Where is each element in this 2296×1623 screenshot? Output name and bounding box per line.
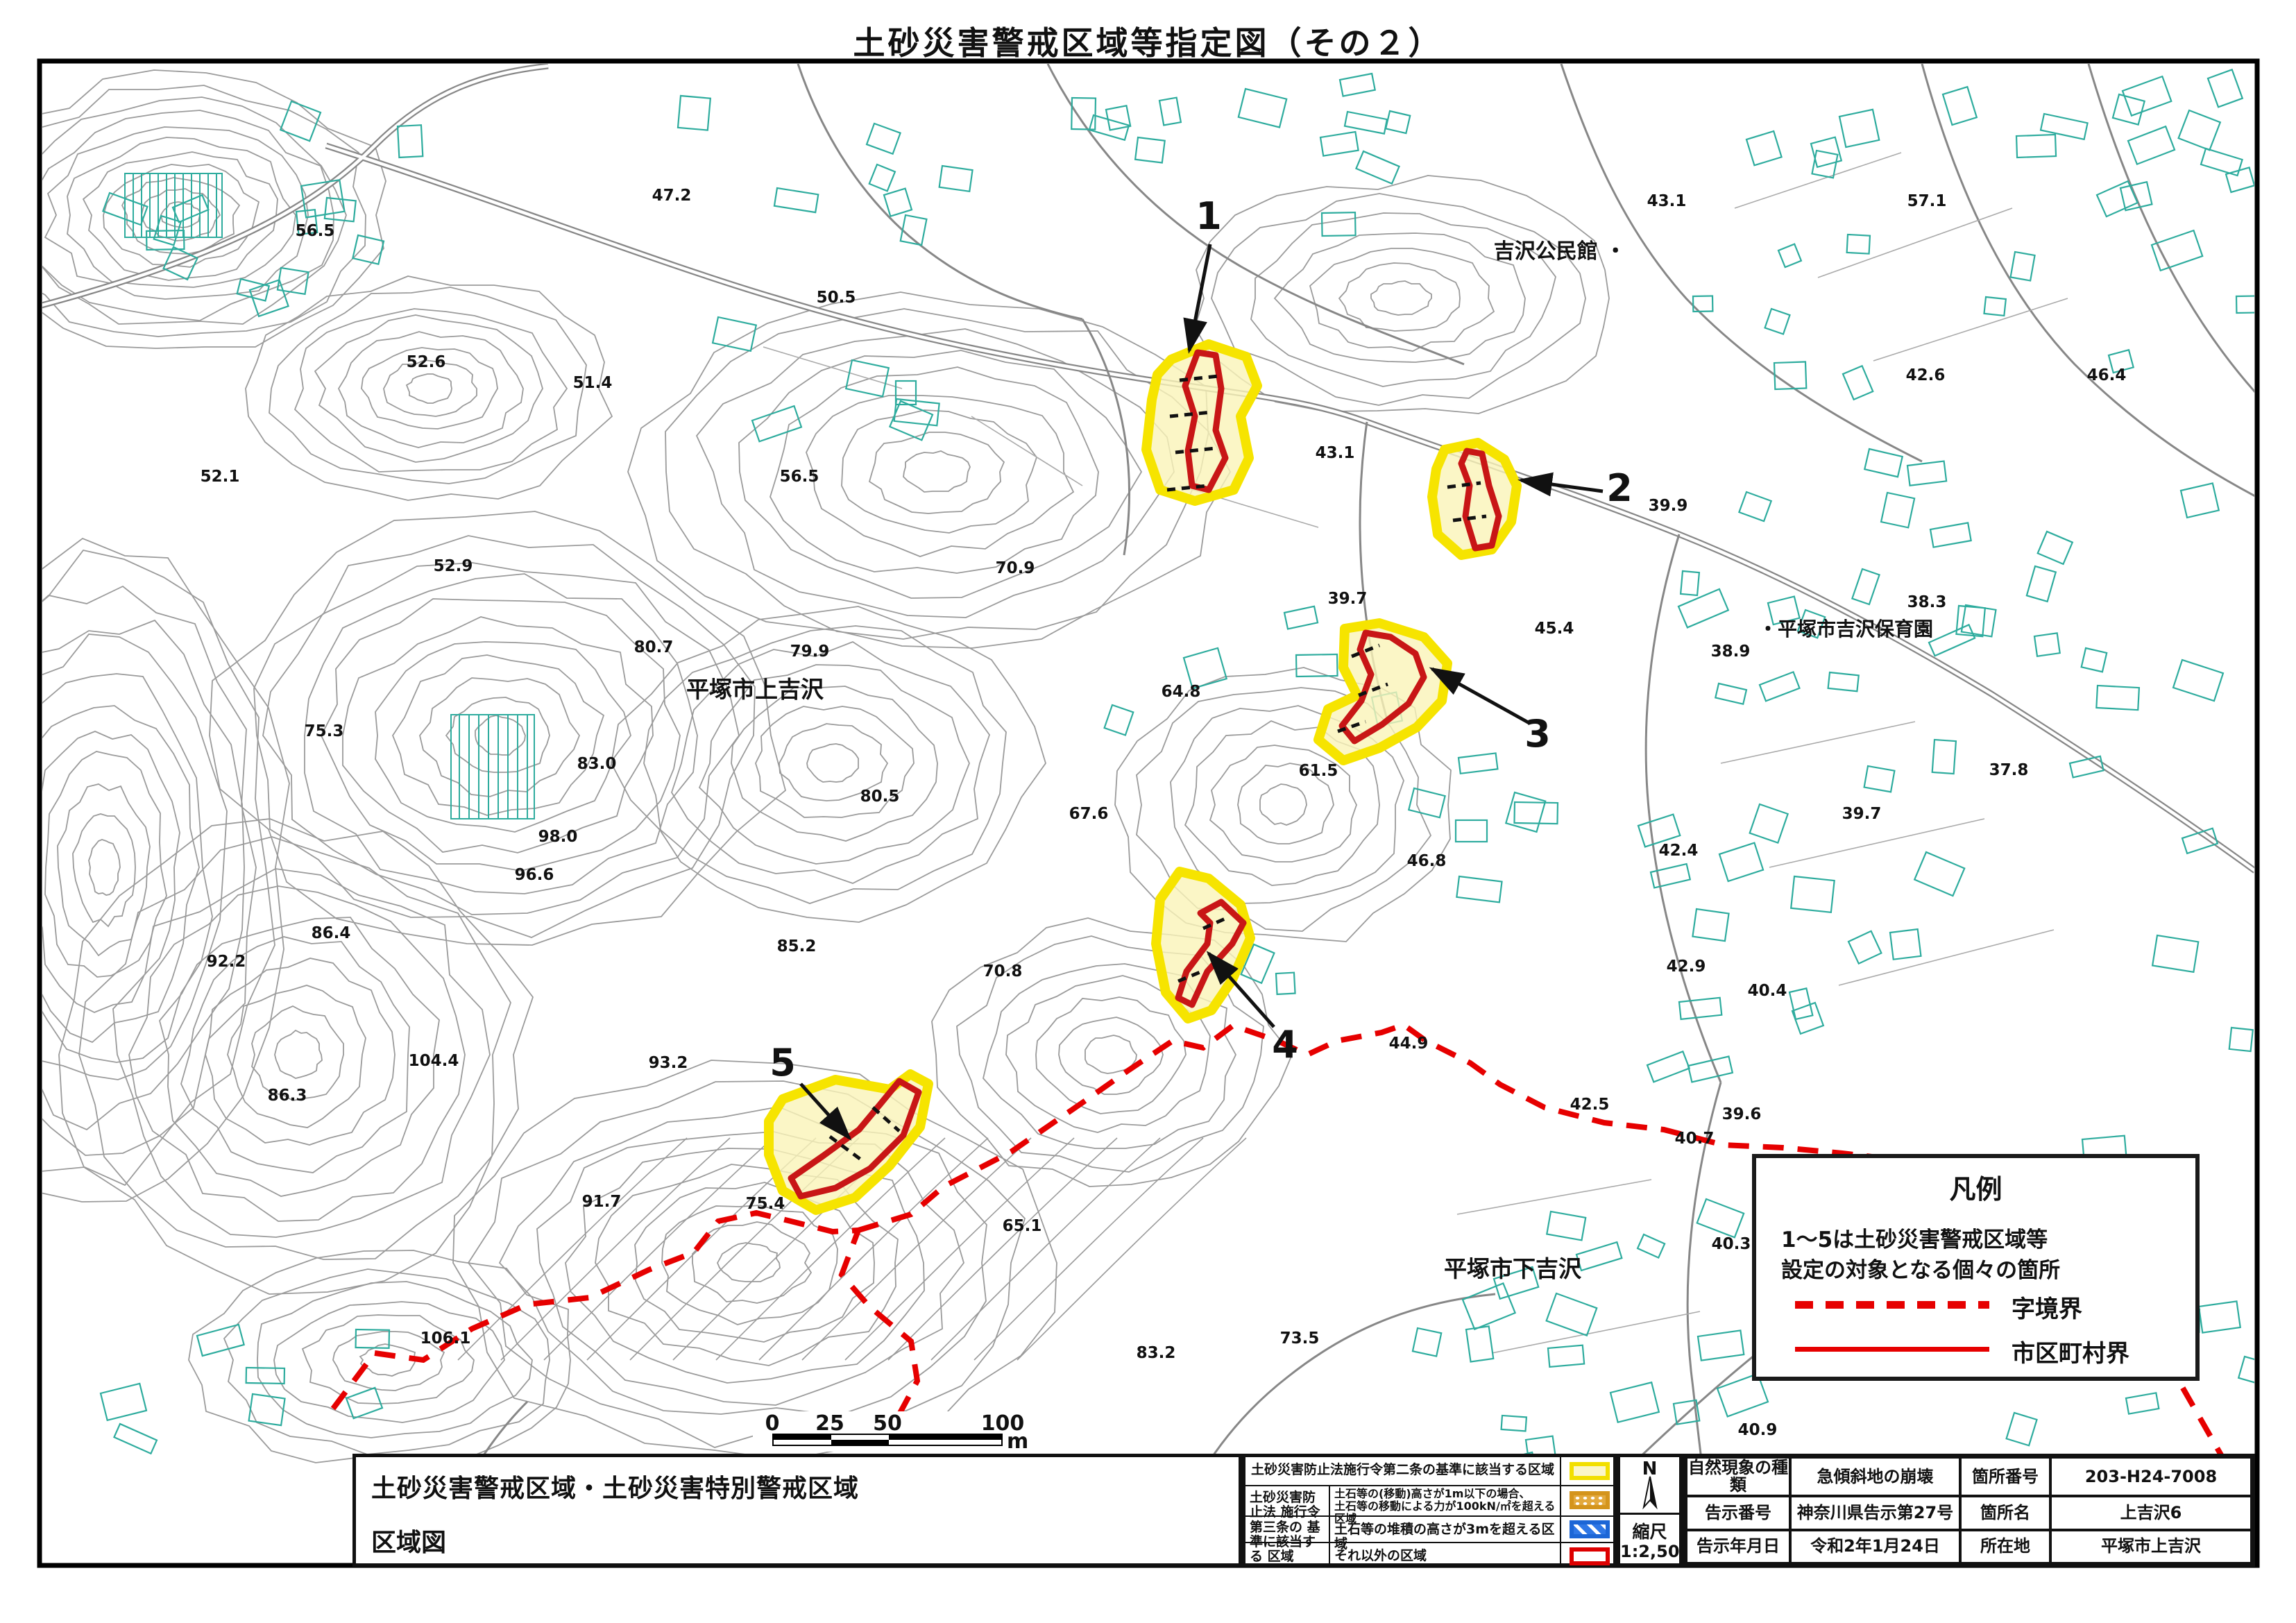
spot-height-label: 86.4 [312,924,351,942]
spot-height-label: 52.9 [434,557,473,575]
blue-hatch-swatch [1570,1520,1610,1538]
compass-scale-box: N 縮尺 1:2,500 [1617,1454,1683,1567]
spot-height-label: 83.2 [1137,1344,1176,1362]
spot-height-label: 57.1 [1907,192,1947,210]
spot-height-label: 39.7 [1328,590,1368,608]
spot-height-label: 43.1 [1316,444,1355,462]
zone-number-label: 5 [769,1041,796,1085]
spot-height-label: 70.9 [996,559,1035,577]
category-row4-label: それ以外の区域 [1334,1549,1556,1563]
zone-number-label: 4 [1272,1023,1298,1067]
place-name-label: ・平塚市吉沢保育園 [1758,618,1933,640]
place-name-label: 吉沢公民館 ・ [1494,239,1626,264]
info-label: 告示年月日 [1686,1530,1790,1563]
spot-height-label: 42.6 [1906,366,1946,384]
spot-height-label: 96.6 [515,866,554,884]
spot-height-label: 92.2 [207,953,246,971]
info-label: 箇所名 [1960,1496,2050,1529]
spot-height-label: 65.1 [1003,1217,1042,1235]
zone-number-label: 2 [1606,466,1633,510]
info-value: 203-H24-7008 [2050,1457,2252,1496]
spot-height-label: 47.2 [652,187,692,205]
hazard-map-page: { "page_title": "土砂災害警戒区域等指定図（その２）", "ma… [0,0,2296,1623]
spot-height-label: 39.9 [1649,497,1688,515]
scale-unit: m [1007,1429,1028,1454]
sheet-title-line1: 土砂災害警戒区域・土砂災害特別警戒区域 [371,1468,859,1504]
spot-height-label: 86.3 [268,1087,307,1105]
spot-height-label: 80.7 [634,638,674,656]
spot-height-label: 43.1 [1647,192,1687,210]
zone-number-label: 3 [1524,712,1551,756]
info-label: 箇所番号 [1960,1457,2050,1496]
scale-tick-50: 50 [873,1411,902,1436]
spot-height-label: 42.9 [1667,958,1706,976]
category-row1-label: 土砂災害防止法施行令第二条の基準に該当する区域 [1251,1463,1556,1477]
spot-height-label: 56.5 [780,468,819,486]
info-value: 上吉沢6 [2050,1496,2252,1529]
spot-height-label: 45.4 [1535,620,1574,638]
spot-height-label: 93.2 [649,1054,688,1072]
info-label: 所在地 [1960,1530,2050,1563]
spot-height-label: 52.1 [201,468,240,486]
info-value: 平塚市上吉沢 [2050,1530,2252,1563]
scale-label: 縮尺 [1620,1518,1679,1543]
area-category-table: 土砂災害防止法施行令第二条の基準に該当する区域 土砂災害防止法 施行令第三条の … [1242,1454,1617,1567]
solid-line-sample [1795,1347,1989,1352]
spot-height-label: 80.5 [860,788,900,806]
legend-note-line1: 1～5は土砂災害警戒区域等 [1781,1222,2048,1253]
sheet-title-box: 土砂災害警戒区域・土砂災害特別警戒区域 区域図 [352,1454,1242,1567]
scale-bar-graphic [772,1434,1003,1446]
category-group-label: 土砂災害防止法 施行令第三条の 基準に該当する 区域 [1250,1490,1327,1564]
spot-height-label: 40.7 [1675,1130,1715,1148]
map-legend-box: 凡例 1～5は土砂災害警戒区域等 設定の対象となる個々の箇所 字境界 市区町村界 [1752,1154,2200,1381]
spot-height-label: 70.8 [983,962,1023,980]
spot-height-label: 38.3 [1907,593,1947,611]
spot-height-label: 50.5 [817,289,856,307]
spot-height-label: 91.7 [582,1193,622,1211]
scale-value: 1:2,500 [1620,1542,1679,1561]
spot-height-label: 104.4 [409,1052,459,1070]
spot-height-label: 40.9 [1738,1421,1778,1439]
dashed-line-sample [1795,1301,1989,1309]
spot-height-label: 79.9 [790,643,830,661]
spot-height-label: 37.8 [1989,761,2029,779]
sheet-title-line2: 区域図 [371,1522,446,1558]
spot-height-label: 85.2 [777,937,817,955]
spot-height-label: 98.0 [538,828,578,846]
spot-height-label: 39.7 [1842,805,1882,823]
orange-hatch-swatch [1570,1491,1610,1509]
red-outline-swatch [1570,1547,1610,1565]
spot-height-label: 52.6 [407,353,446,371]
spot-height-label: 46.8 [1407,852,1447,870]
spot-height-label: 46.4 [2087,366,2127,384]
spot-height-label: 67.6 [1069,805,1109,823]
legend-note-line2: 設定の対象となる個々の箇所 [1781,1252,2060,1284]
scale-bar: 0 25 50 100 m [753,1411,1044,1452]
spot-height-label: 61.5 [1299,762,1338,780]
zone-number-label: 1 [1196,194,1222,238]
scale-tick-0: 0 [765,1411,780,1436]
spot-height-label: 56.5 [296,222,335,240]
info-value: 神奈川県告示第27号 [1790,1496,1960,1529]
solid-line-label: 市区町村界 [2012,1334,2129,1368]
spot-height-label: 38.9 [1711,643,1751,661]
info-value: 令和2年1月24日 [1790,1530,1960,1563]
spot-height-label: 39.6 [1722,1105,1762,1123]
spot-height-label: 40.4 [1748,982,1787,1000]
spot-height-label: 73.5 [1280,1329,1320,1348]
info-value: 急傾斜地の崩壊 [1790,1457,1960,1496]
info-label: 自然現象の種類 [1686,1457,1790,1496]
north-arrow-icon [1641,1475,1659,1510]
yellow-zone-swatch [1570,1462,1610,1480]
info-label: 告示番号 [1686,1496,1790,1529]
legend-title: 凡例 [1756,1168,2195,1206]
spot-height-label: 106.1 [420,1329,471,1348]
place-name-label: 平塚市上吉沢 [686,676,824,703]
category-row2-label: 土石等の(移動)高さが1m以下の場合、 土石等の移動による力が100kN/㎡を超… [1334,1488,1556,1525]
spot-height-label: 42.4 [1659,842,1699,860]
designation-info-table: 自然現象の種類 急傾斜地の崩壊 箇所番号 203-H24-7008 告示番号 神… [1683,1454,2255,1567]
place-name-label: 平塚市下吉沢 [1444,1255,1582,1282]
dashed-line-label: 字境界 [2012,1290,2082,1324]
spot-height-label: 64.8 [1162,683,1201,701]
spot-height-label: 44.9 [1389,1035,1429,1053]
spot-height-label: 75.4 [746,1195,785,1213]
spot-height-label: 83.0 [577,755,617,773]
hazard-zone-1-yellow [1146,344,1257,501]
spot-height-label: 75.3 [305,722,344,740]
scale-tick-25: 25 [815,1411,844,1436]
spot-height-label: 51.4 [573,374,613,392]
spot-height-label: 40.3 [1712,1235,1751,1253]
spot-height-label: 42.5 [1570,1096,1610,1114]
